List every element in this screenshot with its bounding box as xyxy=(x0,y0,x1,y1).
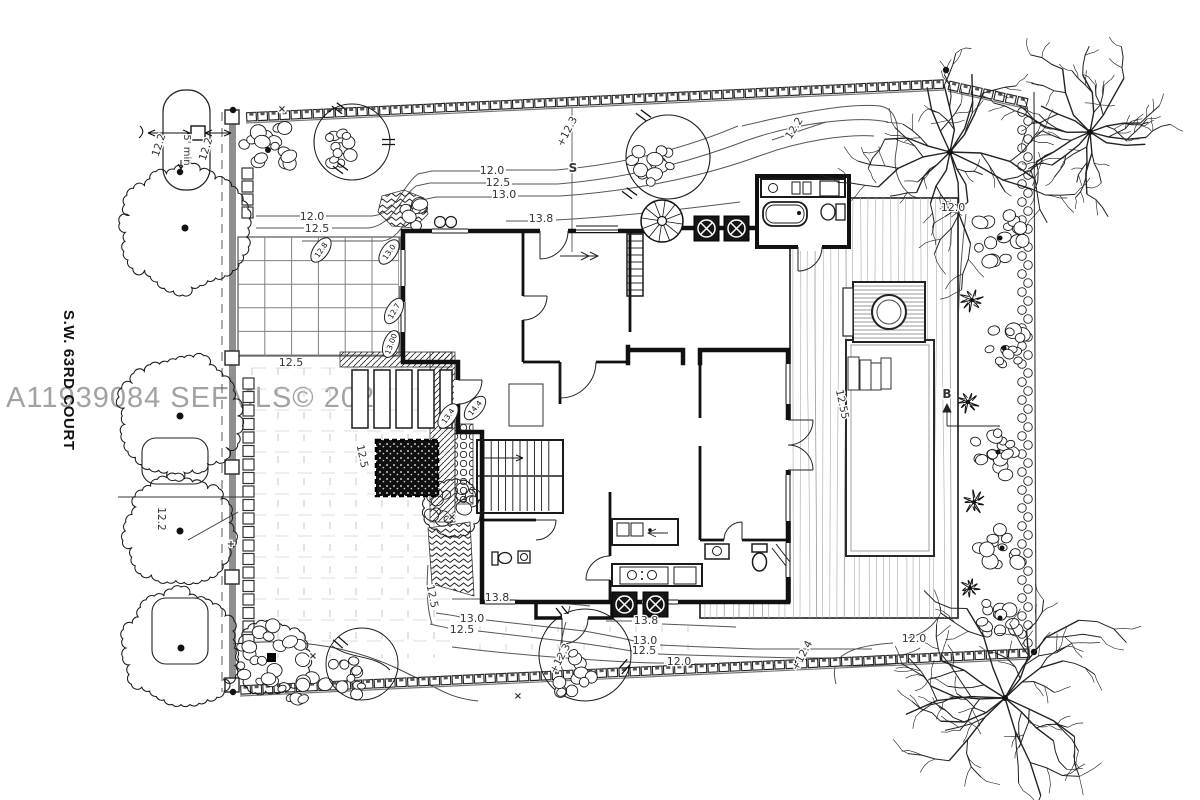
plan-label: 12.5 xyxy=(305,222,330,235)
plan-label: 12.2 xyxy=(783,115,806,141)
contour-line xyxy=(606,621,736,627)
plan-label: 12.5 xyxy=(632,644,657,657)
porch-column xyxy=(446,217,457,228)
plan-label: + xyxy=(227,539,235,550)
plan-label: 12.0 xyxy=(902,632,927,645)
ac-grill-unit xyxy=(724,216,749,241)
stair-treads-spiral xyxy=(484,200,683,511)
hedge-row-top xyxy=(246,80,944,123)
wood-deck-pool-spa xyxy=(700,198,958,618)
ac-grill-unit xyxy=(694,216,719,241)
porch-column xyxy=(435,217,446,228)
oak-tree-ne2 xyxy=(979,37,1183,217)
plan-label: 12.5 xyxy=(424,584,441,609)
plan-label: × xyxy=(278,104,286,115)
powder-room xyxy=(492,551,530,565)
plan-label: 12.5 xyxy=(354,444,371,469)
plan-label: 12.5 xyxy=(279,356,304,369)
plan-label: 13.8 xyxy=(529,212,554,225)
plan-label: 5' min xyxy=(181,134,192,165)
groundcover-dots-band xyxy=(455,424,473,504)
street-name-label: S.W. 63RD COURT xyxy=(60,310,77,451)
plan-label: 12.0 xyxy=(941,201,966,214)
plan-label: S xyxy=(569,161,578,175)
spa xyxy=(843,282,925,342)
wall-post xyxy=(225,570,239,584)
plan-label: × xyxy=(448,512,456,523)
plan-label: 12.2 xyxy=(155,507,167,530)
plan-label: +12.3 xyxy=(554,115,580,149)
hall-rect xyxy=(509,384,543,426)
dense-planting-square xyxy=(376,440,438,496)
wall-post xyxy=(225,460,239,474)
spiral-staircase xyxy=(641,200,683,242)
pool-steps xyxy=(848,357,891,390)
plan-label: 12.2 xyxy=(150,132,169,158)
pergola-and-patios xyxy=(340,352,474,596)
east-buffer-planting xyxy=(958,108,1032,648)
plan-label: × xyxy=(309,651,317,662)
interior-walls xyxy=(482,231,788,602)
plan-label: 12.5 xyxy=(450,623,475,636)
site-plan-page: { "watermark": { "text": "A11939084 SEFM… xyxy=(0,0,1200,800)
kitchen-counter-range xyxy=(612,564,702,586)
entry-arrow xyxy=(560,252,598,260)
wall-post xyxy=(225,351,239,365)
boundary-wall xyxy=(229,114,236,692)
kitchen-island xyxy=(612,519,678,545)
plan-label: × xyxy=(514,691,522,702)
plan-label: 13.0 xyxy=(492,188,517,201)
architectural-site-plan: 12.012.512.012.513.013.812.012.5+12.312.… xyxy=(0,0,1200,800)
plan-label: 13.8 xyxy=(485,591,510,604)
plan-label: B xyxy=(942,387,951,401)
plan-label: 12.0 xyxy=(667,655,692,668)
plan-label: 13.8 xyxy=(634,614,659,627)
bath-se xyxy=(705,544,790,571)
